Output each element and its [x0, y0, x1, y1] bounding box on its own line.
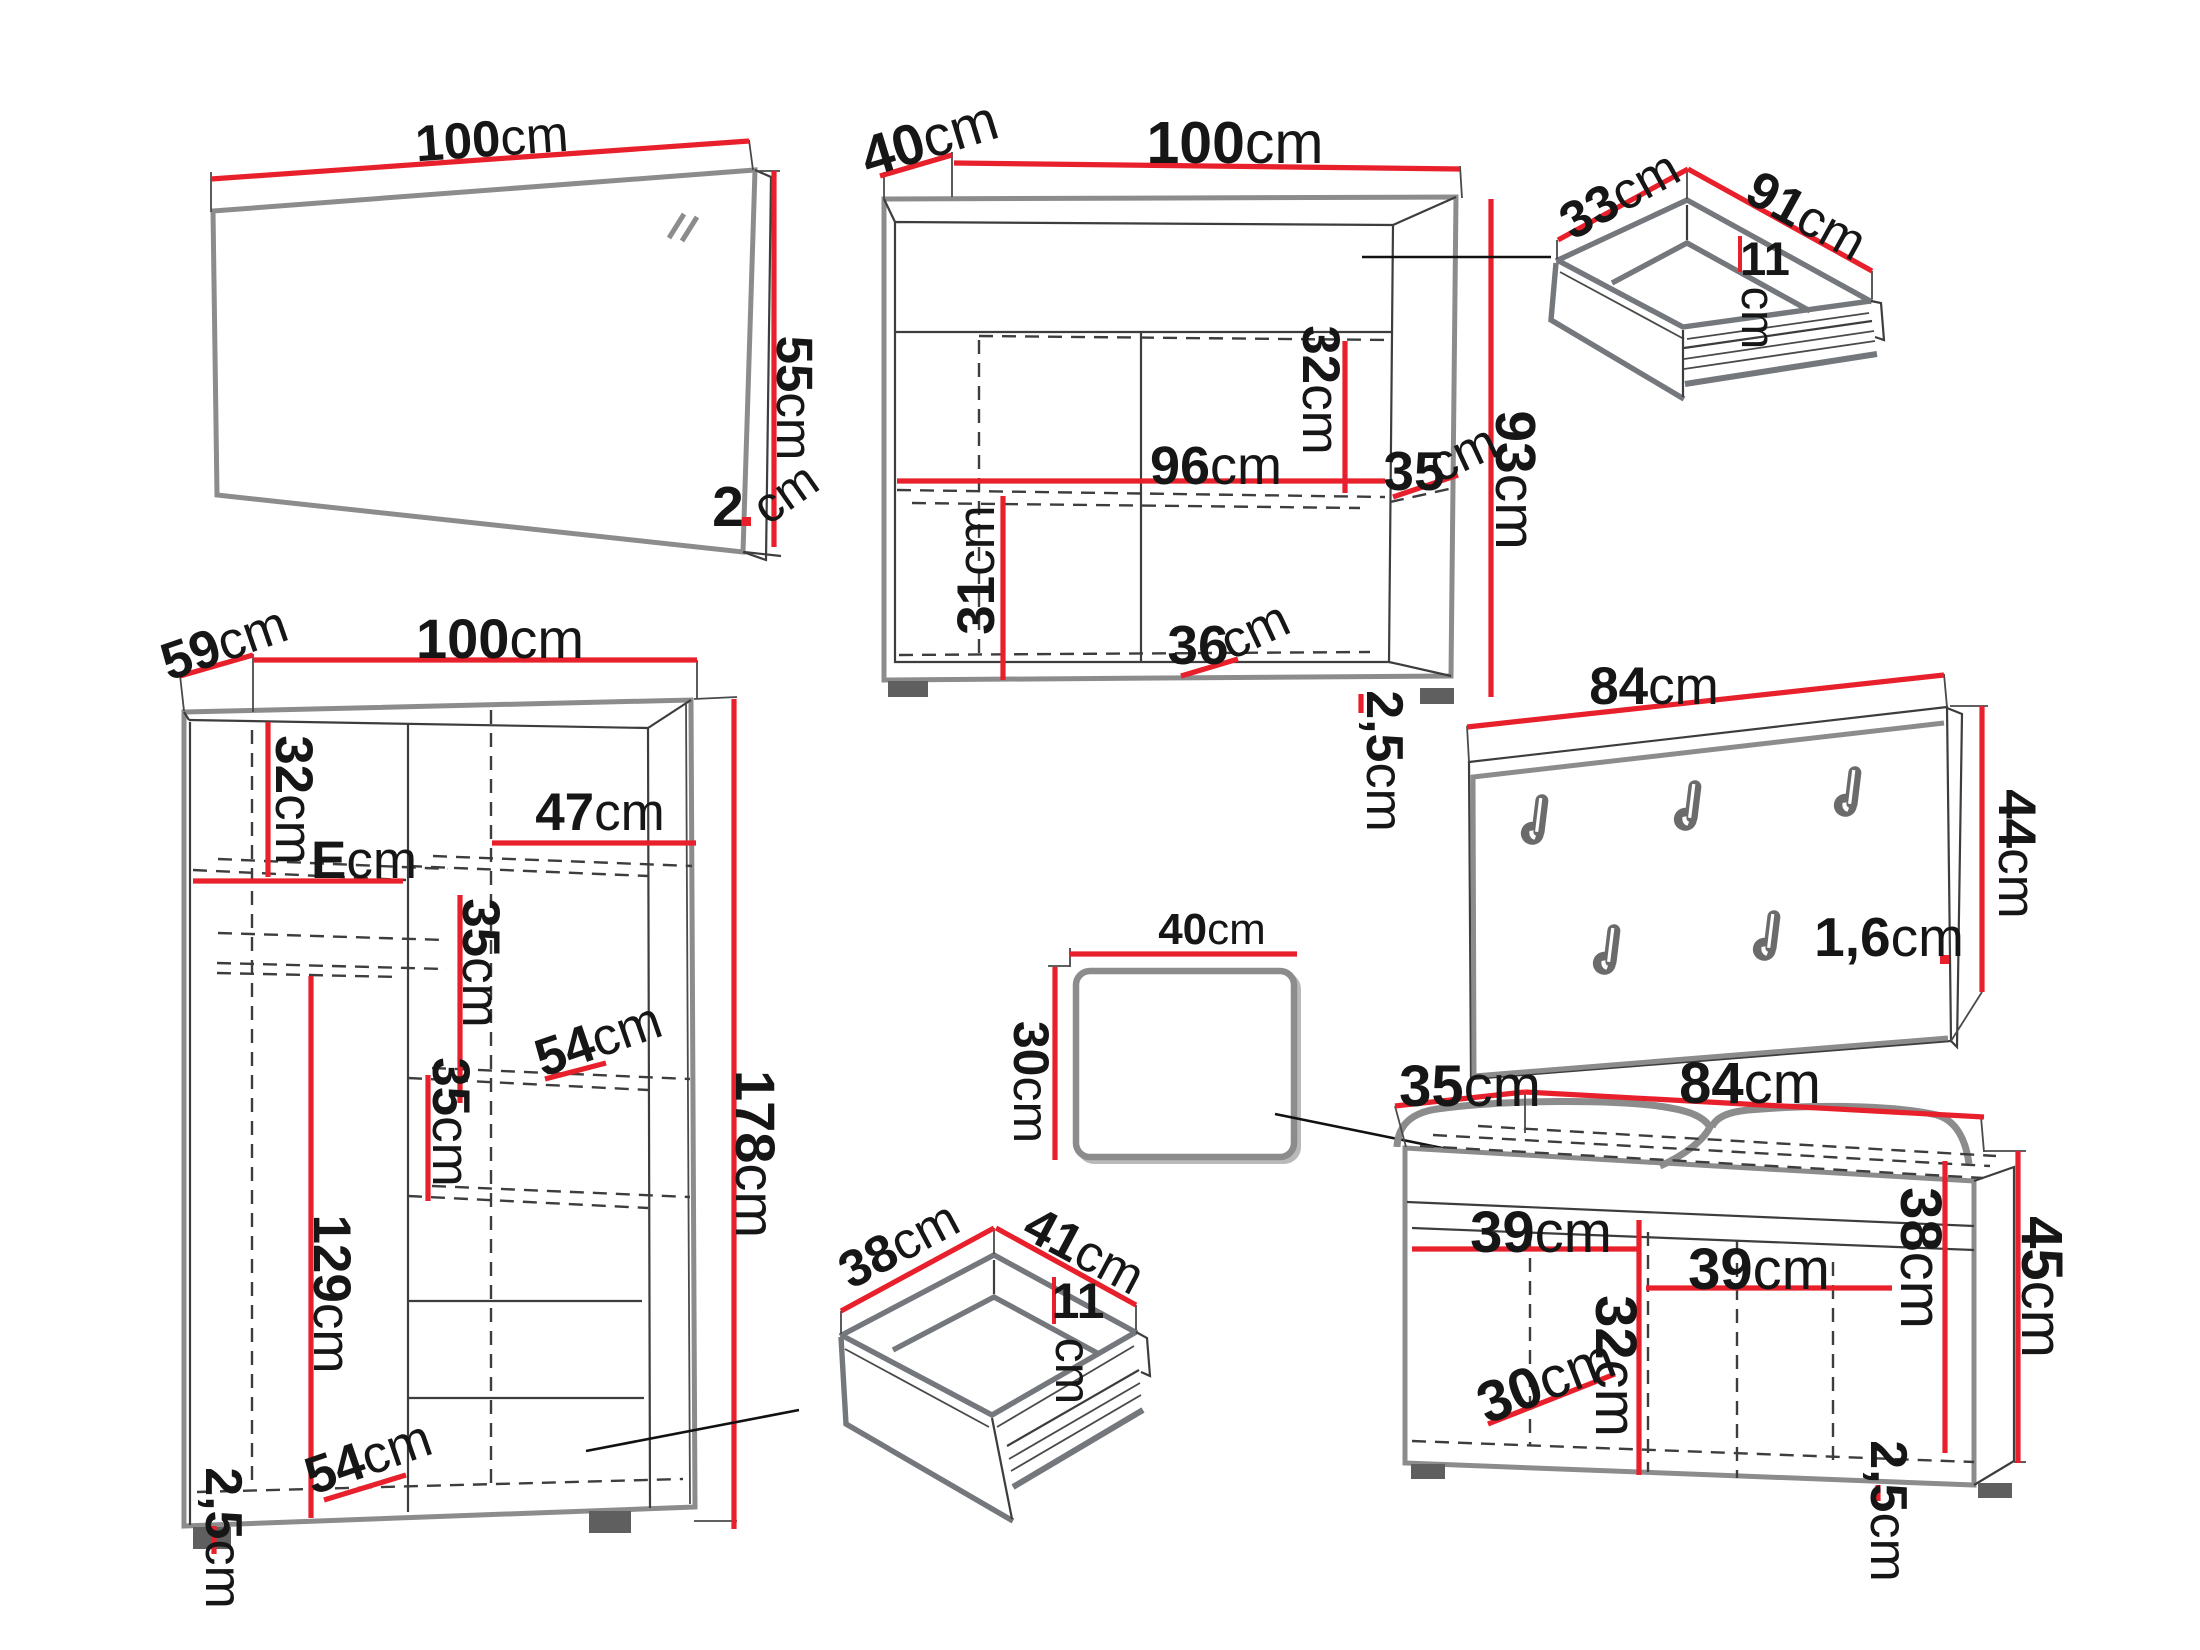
svg-text:2,5cm: 2,5cm [194, 1467, 252, 1609]
svg-text:35cm: 35cm [421, 1057, 480, 1187]
svg-text:38cm: 38cm [1888, 1187, 1953, 1329]
svg-text:96cm: 96cm [1150, 436, 1282, 496]
svg-text:cm: cm [1045, 1338, 1101, 1405]
svg-text:Ecm: Ecm [311, 831, 417, 890]
svg-text:84cm: 84cm [1589, 657, 1719, 716]
svg-text:cm: cm [1732, 287, 1785, 350]
svg-text:2,5cm: 2,5cm [1355, 690, 1413, 832]
svg-text:35cm: 35cm [451, 898, 510, 1028]
svg-text:30cm: 30cm [1003, 1021, 1059, 1143]
svg-text:1,6cm: 1,6cm [1814, 906, 1964, 968]
svg-text:178cm: 178cm [724, 1070, 787, 1238]
svg-text:100cm: 100cm [413, 105, 570, 173]
svg-text:2,5cm: 2,5cm [1859, 1440, 1917, 1582]
svg-text:55cm: 55cm [766, 336, 823, 461]
svg-text:47cm: 47cm [535, 783, 665, 842]
svg-text:11: 11 [1052, 1273, 1105, 1329]
svg-text:2: 2 [712, 475, 744, 539]
svg-text:31cm: 31cm [947, 505, 1006, 635]
svg-text:39cm: 39cm [1470, 1200, 1612, 1265]
svg-text:100cm: 100cm [1146, 110, 1323, 176]
svg-text:32cm: 32cm [1291, 325, 1350, 455]
svg-text:129cm: 129cm [302, 1214, 361, 1373]
svg-text:40cm: 40cm [1158, 905, 1266, 954]
svg-text:45cm: 45cm [2009, 1216, 2074, 1358]
svg-text:11: 11 [1740, 232, 1790, 285]
svg-text:35cm: 35cm [1399, 1054, 1541, 1119]
svg-text:39cm: 39cm [1688, 1237, 1830, 1302]
svg-text:84cm: 84cm [1679, 1051, 1821, 1116]
svg-text:44cm: 44cm [1987, 789, 2046, 919]
svg-text:100cm: 100cm [416, 607, 584, 670]
svg-text:93cm: 93cm [1483, 410, 1547, 549]
